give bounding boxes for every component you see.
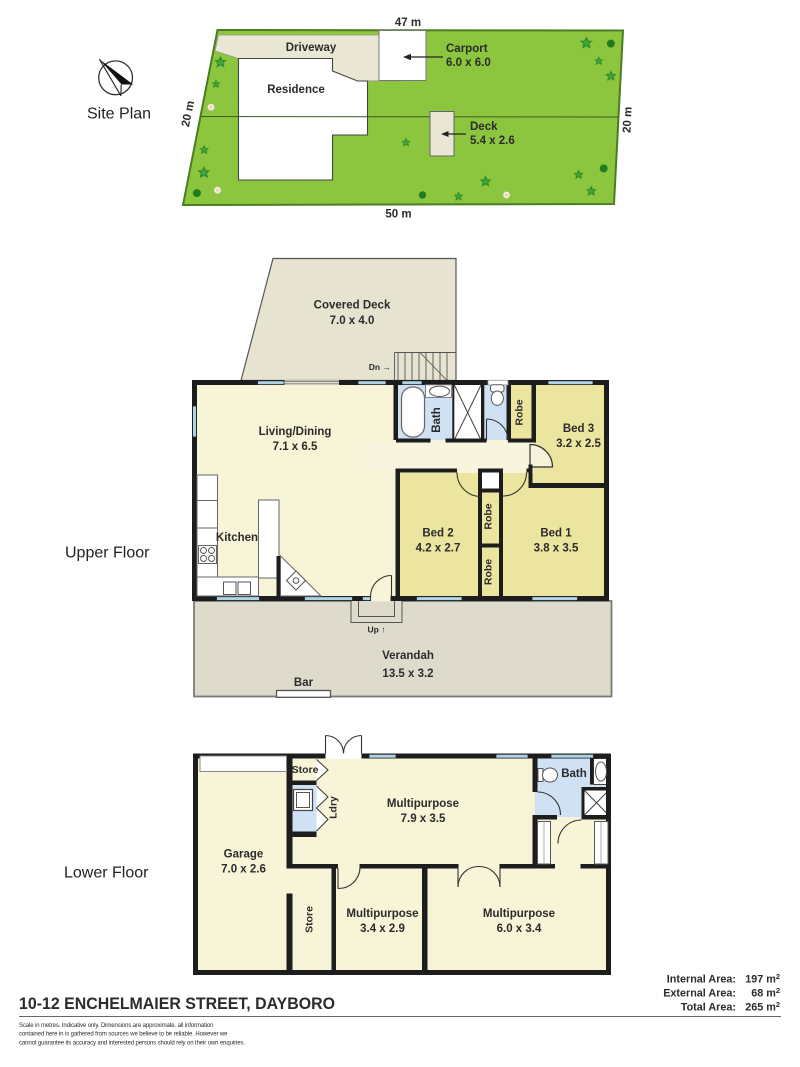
svg-text:Robe: Robe — [514, 399, 526, 425]
svg-text:68 m2: 68 m2 — [751, 986, 780, 1000]
svg-text:Residence: Residence — [267, 84, 325, 96]
svg-text:7.1 x 6.5: 7.1 x 6.5 — [273, 441, 318, 453]
svg-text:Covered Deck: Covered Deck — [314, 300, 391, 312]
svg-text:Deck: Deck — [470, 121, 498, 133]
svg-text:3.2 x 2.5: 3.2 x 2.5 — [556, 438, 601, 450]
svg-text:3.4 x 2.9: 3.4 x 2.9 — [360, 923, 405, 935]
svg-text:Multipurpose: Multipurpose — [387, 798, 459, 810]
svg-text:Robe: Robe — [483, 559, 495, 585]
svg-text:20 m: 20 m — [180, 100, 197, 128]
svg-text:Site Plan: Site Plan — [87, 106, 151, 123]
svg-text:Multipurpose: Multipurpose — [483, 908, 555, 920]
svg-text:Dn →: Dn → — [369, 362, 391, 372]
svg-text:Upper Floor: Upper Floor — [65, 545, 150, 562]
svg-text:5.4 x 2.6: 5.4 x 2.6 — [470, 135, 515, 147]
svg-text:Kitchen: Kitchen — [216, 532, 258, 544]
svg-text:contained here in is gathered: contained here in is gathered from sourc… — [19, 1032, 228, 1038]
svg-text:47 m: 47 m — [395, 17, 421, 29]
svg-text:Internal Area:: Internal Area: — [667, 974, 736, 986]
svg-text:Scale in metres. Indicative on: Scale in metres. Indicative only. Dimens… — [19, 1023, 214, 1029]
svg-text:Garage: Garage — [224, 849, 264, 861]
svg-text:Bath: Bath — [561, 768, 587, 780]
svg-text:6.0 x 6.0: 6.0 x 6.0 — [446, 57, 491, 69]
svg-text:13.5 x 3.2: 13.5 x 3.2 — [382, 668, 433, 680]
svg-text:4.2 x 2.7: 4.2 x 2.7 — [416, 543, 461, 555]
svg-text:20 m: 20 m — [621, 106, 634, 133]
svg-text:7.0 x 4.0: 7.0 x 4.0 — [330, 315, 375, 327]
svg-text:10-12 ENCHELMAIER STREET, DAYB: 10-12 ENCHELMAIER STREET, DAYBORO — [19, 994, 335, 1013]
svg-text:Store: Store — [292, 764, 319, 776]
svg-text:7.9 x 3.5: 7.9 x 3.5 — [401, 813, 446, 825]
svg-text:cannot guarantee its accuracy: cannot guarantee its accuracy and intere… — [19, 1040, 245, 1046]
svg-text:Store: Store — [304, 906, 316, 933]
svg-text:Verandah: Verandah — [382, 650, 434, 662]
svg-text:3.8 x 3.5: 3.8 x 3.5 — [534, 543, 579, 555]
svg-text:197 m2: 197 m2 — [745, 972, 780, 986]
svg-text:Lower Floor: Lower Floor — [64, 865, 149, 882]
svg-text:Bed 2: Bed 2 — [422, 528, 453, 540]
svg-text:Ldry: Ldry — [328, 796, 340, 819]
svg-text:7.0 x 2.6: 7.0 x 2.6 — [221, 864, 266, 876]
svg-text:Robe: Robe — [483, 503, 495, 529]
svg-text:265 m2: 265 m2 — [745, 1000, 780, 1014]
svg-text:Total Area:: Total Area: — [681, 1002, 736, 1014]
svg-text:Living/Dining: Living/Dining — [259, 426, 332, 438]
svg-text:Carport: Carport — [446, 43, 488, 55]
svg-text:Bath: Bath — [431, 407, 443, 433]
svg-text:Bed 1: Bed 1 — [540, 528, 572, 540]
svg-text:6.0 x 3.4: 6.0 x 3.4 — [497, 923, 542, 935]
svg-text:External Area:: External Area: — [663, 988, 736, 1000]
svg-text:Multipurpose: Multipurpose — [346, 908, 418, 920]
svg-text:Up ↑: Up ↑ — [368, 625, 386, 635]
svg-text:50 m: 50 m — [385, 209, 411, 221]
svg-text:Bar: Bar — [294, 677, 314, 689]
svg-text:Bed 3: Bed 3 — [563, 423, 594, 435]
svg-text:Driveway: Driveway — [286, 42, 337, 54]
